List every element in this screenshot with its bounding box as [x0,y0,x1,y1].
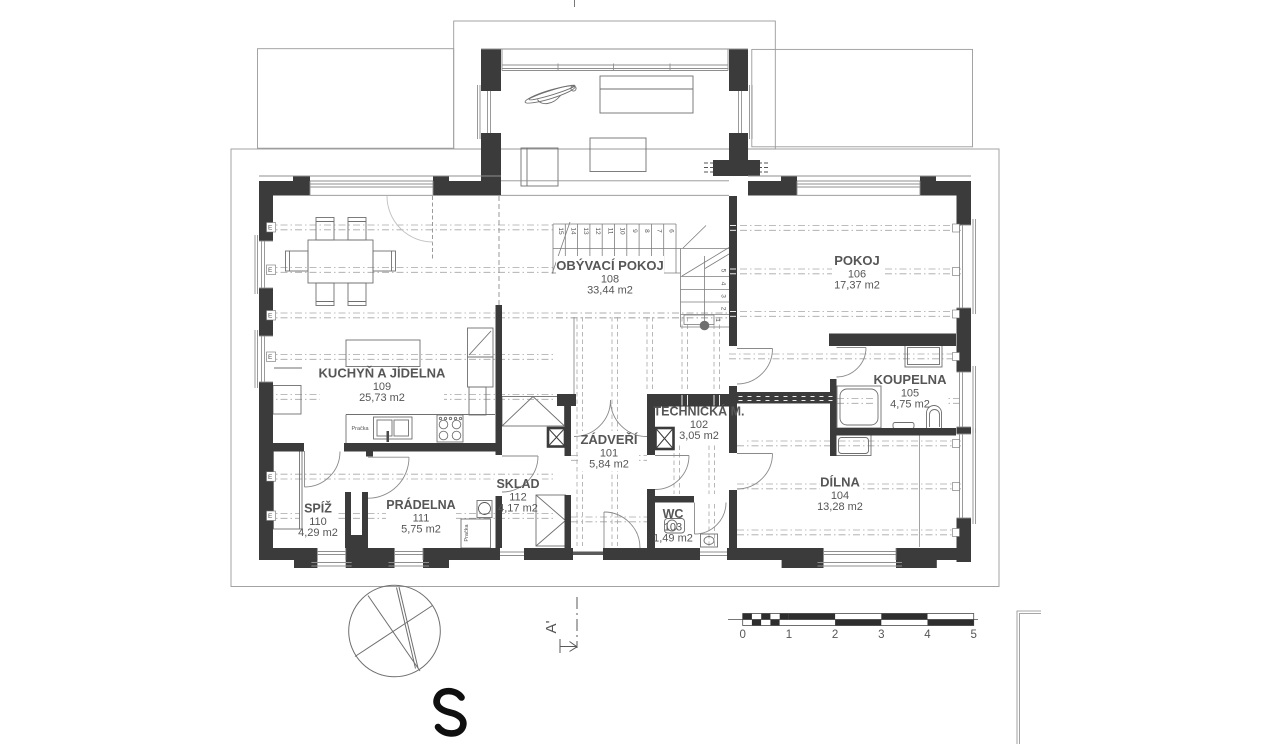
svg-text:2: 2 [832,629,838,641]
svg-text:8: 8 [643,229,650,233]
svg-text:4,17 m2: 4,17 m2 [498,503,538,515]
svg-text:11: 11 [606,228,613,235]
svg-text:0: 0 [739,629,745,641]
svg-text:SPÍŽ: SPÍŽ [304,501,332,516]
svg-text:5: 5 [970,629,976,641]
svg-text:17,37 m2: 17,37 m2 [834,280,880,292]
svg-text:E: E [268,513,273,520]
svg-text:Pračka: Pračka [464,524,470,542]
svg-text:ZÁDVEŘÍ: ZÁDVEŘÍ [580,432,637,447]
svg-text:12: 12 [594,227,601,235]
svg-text:KUCHYŇ A JÍDELNA: KUCHYŇ A JÍDELNA [319,366,446,381]
svg-text:4: 4 [720,282,727,286]
svg-text:E: E [268,267,273,274]
svg-text:Pračka: Pračka [351,426,369,432]
svg-text:KOUPELNA: KOUPELNA [874,372,948,387]
svg-text:10: 10 [619,227,626,235]
svg-text:25,73 m2: 25,73 m2 [359,392,405,404]
svg-text:3: 3 [878,629,884,641]
svg-text:DÍLNA: DÍLNA [820,475,860,490]
svg-text:15: 15 [557,227,564,235]
svg-text:SKLAD: SKLAD [496,477,539,491]
svg-text:PRÁDELNA: PRÁDELNA [386,497,455,512]
svg-text:4,75 m2: 4,75 m2 [890,399,930,411]
svg-text:OBÝVACÍ POKOJ: OBÝVACÍ POKOJ [556,258,663,273]
svg-text:E: E [268,313,273,320]
svg-text:1,49 m2: 1,49 m2 [653,533,693,545]
svg-text:3,05 m2: 3,05 m2 [679,430,719,442]
svg-text:4,29 m2: 4,29 m2 [298,527,338,539]
svg-text:POKOJ: POKOJ [834,253,880,268]
svg-text:33,44 m2: 33,44 m2 [587,285,633,297]
svg-text:4: 4 [924,629,931,641]
svg-text:13: 13 [582,227,589,235]
svg-text:1: 1 [786,629,792,641]
svg-text:14: 14 [570,227,577,235]
svg-text:TECHNICKÁ M.: TECHNICKÁ M. [654,404,745,419]
svg-text:5: 5 [720,269,727,273]
svg-text:7: 7 [655,229,662,233]
svg-text:A': A' [543,620,560,633]
svg-text:2: 2 [720,307,727,311]
svg-text:5,75 m2: 5,75 m2 [401,524,441,536]
svg-text:9: 9 [631,229,638,233]
svg-text:13,28 m2: 13,28 m2 [817,501,863,513]
svg-text:6: 6 [668,229,675,233]
svg-text:3: 3 [720,294,727,298]
svg-text:E: E [268,354,273,361]
svg-text:1: 1 [714,318,721,322]
svg-text:E: E [268,225,273,232]
svg-text:WC: WC [663,507,684,521]
svg-text:E: E [268,474,273,481]
svg-text:5,84 m2: 5,84 m2 [589,459,629,471]
